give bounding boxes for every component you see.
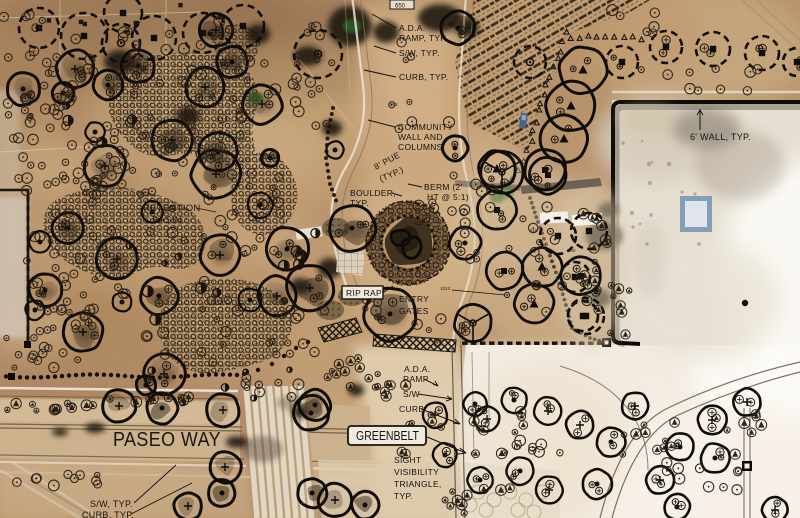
svg-text:S/W, TYP.: S/W, TYP. [399,48,440,58]
svg-text:RIP RAP: RIP RAP [346,288,382,298]
svg-text:918: 918 [530,228,538,233]
svg-text:CURB: CURB [399,404,424,414]
svg-text:PASEO WAY: PASEO WAY [113,428,221,451]
svg-text:GATES: GATES [399,306,429,316]
svg-text:822: 822 [415,221,423,226]
svg-text:RETENTION: RETENTION [143,203,201,214]
svg-text:TRIANGLE,: TRIANGLE, [394,479,442,489]
svg-text:SIGHT: SIGHT [394,455,421,465]
svg-text:1013: 1013 [440,286,451,291]
svg-text:BOULDER,: BOULDER, [350,188,396,198]
svg-text:A.D.A.: A.D.A. [399,23,425,33]
svg-text:TYP.: TYP. [350,198,369,208]
svg-text:S/W: S/W [403,389,420,399]
svg-text:HT @ 5:1): HT @ 5:1) [427,192,469,202]
svg-text:6' WALL, TYP.: 6' WALL, TYP. [690,132,751,142]
svg-text:RAMP, TYP: RAMP, TYP [399,33,446,43]
svg-text:650: 650 [395,4,406,10]
svg-text:TYP.: TYP. [394,491,413,501]
svg-text:VISIBILITY: VISIBILITY [394,467,439,477]
svg-text:ENTRY: ENTRY [399,294,429,304]
svg-text:BASIN: BASIN [152,215,182,226]
svg-text:1023: 1023 [470,451,481,456]
svg-text:WALL AND: WALL AND [398,132,443,142]
svg-text:GREENBELT: GREENBELT [356,429,419,443]
svg-text:240: 240 [568,248,576,253]
svg-text:873: 873 [390,102,398,107]
svg-text:A.D.A.: A.D.A. [404,364,430,374]
svg-text:COMMUNITY: COMMUNITY [398,122,453,132]
svg-text:COLUMNS: COLUMNS [398,142,443,152]
svg-text:911: 911 [600,226,608,231]
svg-text:CURB, TYP.: CURB, TYP. [399,72,448,82]
svg-text:BERM (2': BERM (2' [424,182,463,192]
svg-text:CURB, TYP.: CURB, TYP. [82,510,134,518]
svg-text:S/W, TYP.: S/W, TYP. [90,499,133,509]
